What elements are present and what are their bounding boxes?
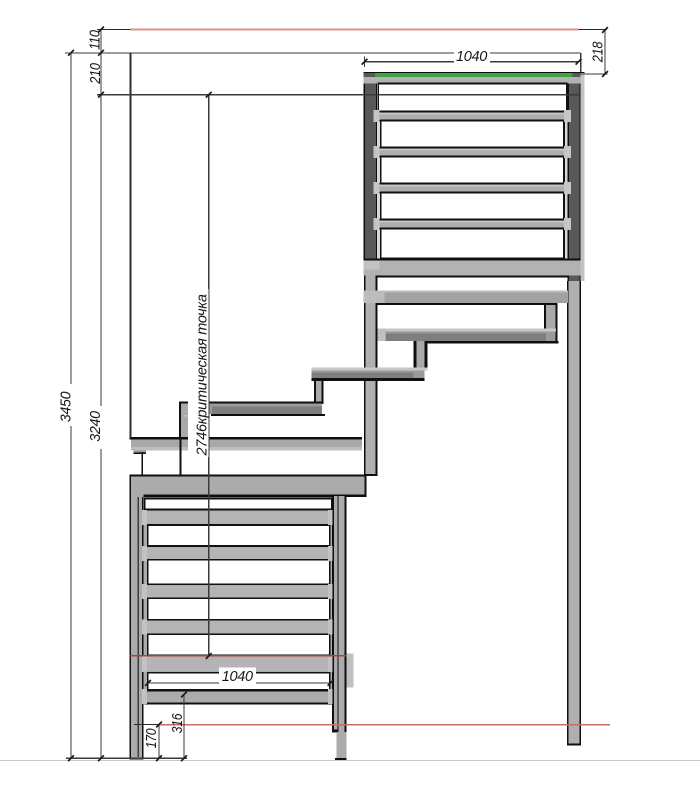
svg-text:316: 316 <box>169 713 185 733</box>
svg-text:110: 110 <box>85 30 102 50</box>
svg-text:170: 170 <box>143 728 159 748</box>
svg-text:3450: 3450 <box>58 392 74 423</box>
svg-text:3240: 3240 <box>88 411 104 442</box>
svg-text:1040: 1040 <box>222 669 253 685</box>
svg-text:218: 218 <box>588 41 605 63</box>
svg-text:1040: 1040 <box>456 49 487 65</box>
svg-text:2746критическая точка: 2746критическая точка <box>195 294 211 456</box>
svg-text:210: 210 <box>86 63 103 85</box>
